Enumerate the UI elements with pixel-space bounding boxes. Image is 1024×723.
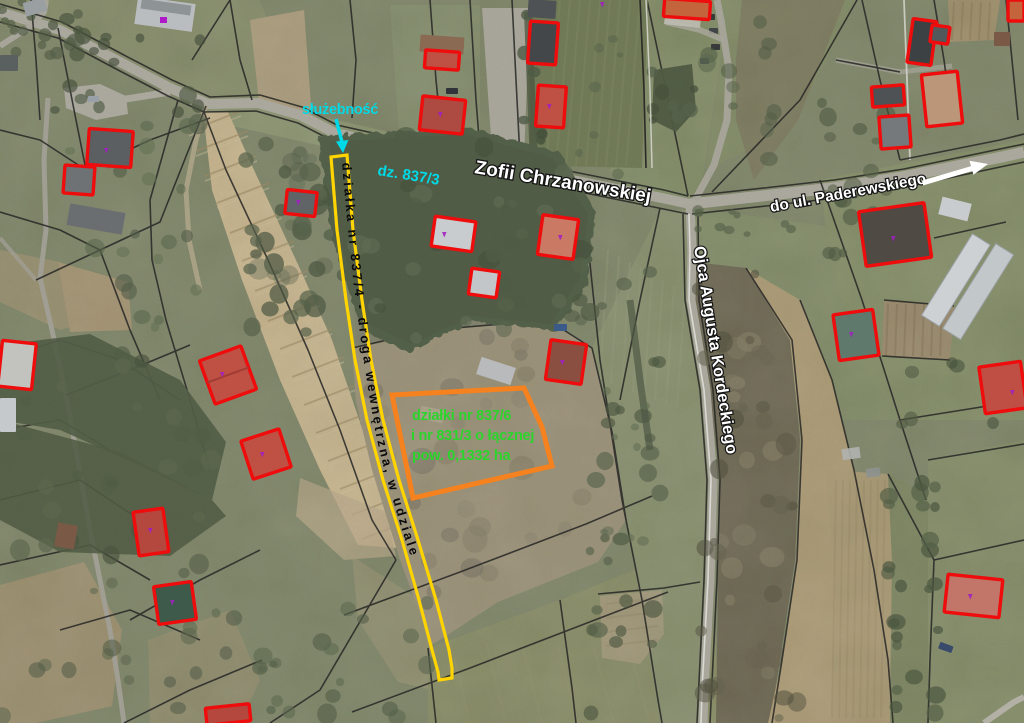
svg-text:pow. 0,1332 ha: pow. 0,1332 ha <box>412 448 511 464</box>
svg-text:służebność: służebność <box>302 102 378 118</box>
svg-text:i nr 831/3 o łącznej: i nr 831/3 o łącznej <box>411 428 534 444</box>
svg-text:działki nr 837/6: działki nr 837/6 <box>412 408 511 424</box>
